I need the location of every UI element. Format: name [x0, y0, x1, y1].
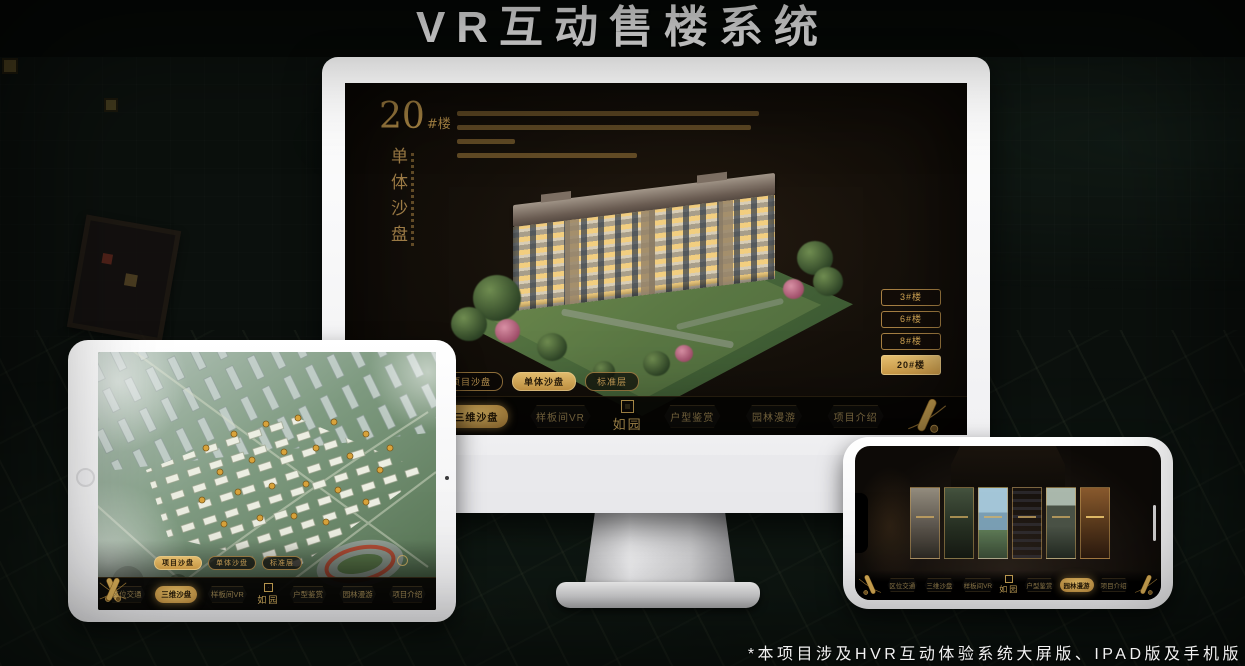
floor-button-list: 3#楼 6#楼 8#楼 20#楼 — [881, 289, 941, 375]
nav-item-floorplan[interactable]: 户型鉴赏 — [287, 586, 329, 603]
scene-panel-gallery — [910, 487, 1110, 559]
background-gold-mark — [2, 58, 18, 74]
nav-item-location-traffic[interactable]: 区位交通 — [885, 578, 919, 592]
scene-panel[interactable] — [1012, 487, 1042, 559]
page-title: VR互动售楼系统 — [0, 0, 1245, 57]
brand-logo: 如园 — [257, 583, 279, 606]
scene-panel[interactable] — [978, 487, 1008, 559]
tablet-nav-bar: 区位交通 三维沙盘 样板间VR 如园 户型鉴赏 园林漫游 项目介绍 — [98, 577, 436, 610]
nav-item-project-intro[interactable]: 项目介绍 — [386, 586, 428, 603]
scroll-menu-icon[interactable] — [905, 399, 949, 433]
scene-panel[interactable] — [1080, 487, 1110, 559]
floor-button-3[interactable]: 3#楼 — [881, 289, 941, 306]
poster-canvas: VR互动售楼系统 20#楼 单体沙盘 — [0, 0, 1245, 666]
background-plaque — [67, 215, 181, 344]
nav-item-project-intro[interactable]: 项目介绍 — [824, 405, 888, 428]
tab-standard-floor[interactable]: 标准层 — [585, 372, 639, 391]
nav-item-3d-sandbox[interactable]: 三维沙盘 — [155, 586, 197, 603]
nav-item-garden-roam[interactable]: 园林漫游 — [1060, 578, 1094, 592]
tree — [451, 307, 487, 341]
logo-text: 如园 — [999, 584, 1019, 595]
flower-tree — [783, 279, 804, 299]
phone-nav-bar: 区位交通 三维沙盘 样板间VR 如园 户型鉴赏 园林漫游 项目介绍 — [855, 570, 1161, 600]
tree — [643, 351, 670, 376]
nav-item-showroom-vr[interactable]: 样板间VR — [205, 586, 250, 603]
brand-logo: 如园 — [999, 575, 1019, 595]
tree — [813, 267, 843, 296]
courtyard-gate-backdrop — [951, 446, 1065, 488]
logo-seal-icon — [264, 583, 273, 592]
nav-item-floorplan[interactable]: 户型鉴赏 — [660, 405, 724, 428]
logo-text: 如园 — [613, 414, 643, 433]
smartphone-device: 区位交通 三维沙盘 样板间VR 如园 户型鉴赏 园林漫游 项目介绍 — [843, 437, 1173, 609]
home-indicator — [1153, 505, 1156, 541]
flower-tree — [495, 319, 520, 343]
tab-single-sandbox[interactable]: 单体沙盘 — [208, 556, 256, 570]
monitor-stand-neck — [585, 508, 735, 584]
scene-panel[interactable] — [910, 487, 940, 559]
monitor-stand-base — [556, 582, 760, 608]
tablet-screen: 项目沙盘 单体沙盘 标准层 区位交通 三维沙盘 样板间VR 如园 户型鉴赏 园林… — [98, 352, 436, 610]
view-tab-group: 项目沙盘 单体沙盘 标准层 — [439, 372, 639, 391]
floor-button-6[interactable]: 6#楼 — [881, 311, 941, 328]
nav-item-showroom-vr[interactable]: 样板间VR — [960, 578, 997, 592]
tablet-view-tabs: 项目沙盘 单体沙盘 标准层 — [154, 556, 302, 570]
scene-panel[interactable] — [944, 487, 974, 559]
logo-text: 如园 — [257, 593, 279, 606]
phone-notch — [855, 493, 868, 553]
brand-logo: 如园 — [613, 400, 643, 433]
footnote-text: *本项目涉及HVR互动体验系统大屏版、IPAD版及手机版 — [748, 640, 1242, 664]
background-gold-mark — [104, 98, 118, 112]
scroll-menu-icon[interactable] — [858, 575, 882, 595]
nav-item-floorplan[interactable]: 户型鉴赏 — [1022, 578, 1056, 592]
tablet-device: 项目沙盘 单体沙盘 标准层 区位交通 三维沙盘 样板间VR 如园 户型鉴赏 园林… — [68, 340, 456, 622]
tab-project-sandbox[interactable]: 项目沙盘 — [154, 556, 202, 570]
compass-icon — [397, 555, 408, 566]
tree — [537, 333, 567, 361]
flower-tree — [675, 345, 693, 362]
logo-seal-icon — [621, 400, 634, 413]
scroll-menu-icon[interactable] — [1134, 575, 1158, 595]
phone-screen: 区位交通 三维沙盘 样板间VR 如园 户型鉴赏 园林漫游 项目介绍 — [855, 446, 1161, 600]
nav-item-3d-sandbox[interactable]: 三维沙盘 — [922, 578, 956, 592]
scroll-menu-icon[interactable] — [98, 578, 128, 602]
floor-button-8[interactable]: 8#楼 — [881, 333, 941, 350]
scene-panel[interactable] — [1046, 487, 1076, 559]
camera-dot — [445, 476, 449, 480]
logo-seal-icon — [1005, 575, 1013, 583]
nav-item-project-intro[interactable]: 项目介绍 — [1097, 578, 1131, 592]
tab-standard-floor[interactable]: 标准层 — [262, 556, 302, 570]
floor-button-20[interactable]: 20#楼 — [881, 355, 941, 375]
nav-item-garden-roam[interactable]: 园林漫游 — [337, 586, 379, 603]
nav-item-showroom-vr[interactable]: 样板间VR — [526, 405, 595, 428]
tab-single-sandbox[interactable]: 单体沙盘 — [512, 372, 576, 391]
nav-item-garden-roam[interactable]: 园林漫游 — [742, 405, 806, 428]
home-button[interactable] — [76, 468, 95, 487]
